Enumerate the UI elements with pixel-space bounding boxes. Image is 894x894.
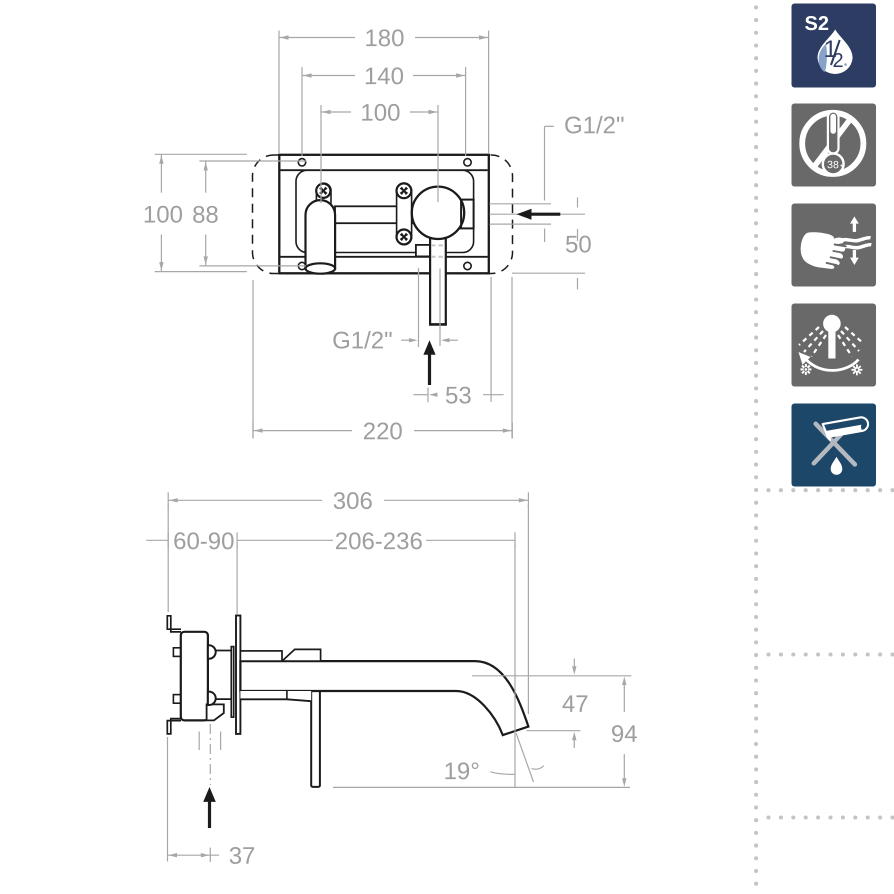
svg-text:47: 47 (562, 691, 589, 718)
svg-text:60-90: 60-90 (173, 528, 234, 555)
svg-text:140: 140 (364, 63, 404, 90)
svg-text:50: 50 (565, 231, 592, 258)
svg-text:100: 100 (143, 202, 183, 229)
svg-text:180: 180 (364, 25, 404, 52)
svg-text:306: 306 (333, 488, 373, 515)
svg-text:37: 37 (229, 843, 256, 870)
svg-text:88: 88 (192, 202, 219, 229)
svg-text:94: 94 (611, 721, 638, 748)
svg-text:S2: S2 (804, 13, 828, 35)
svg-text:19°: 19° (444, 758, 480, 785)
svg-text:206-236: 206-236 (335, 528, 423, 555)
svg-text:100: 100 (360, 100, 400, 127)
svg-text:G1/2": G1/2" (332, 327, 393, 354)
svg-text:2: 2 (832, 50, 843, 72)
svg-text:38: 38 (827, 159, 839, 171)
svg-text:53: 53 (445, 382, 472, 409)
svg-text:G1/2": G1/2" (564, 112, 625, 139)
svg-text:220: 220 (363, 418, 403, 445)
